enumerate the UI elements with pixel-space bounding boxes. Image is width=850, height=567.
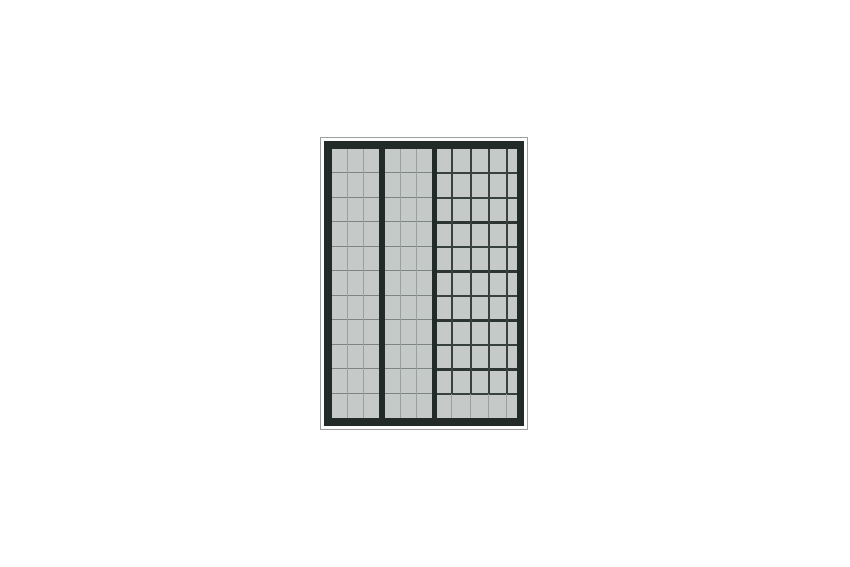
left-grid bbox=[332, 149, 379, 418]
panel-frame bbox=[324, 141, 524, 426]
grid-line bbox=[437, 393, 517, 395]
grid-line bbox=[332, 393, 379, 394]
grid-line bbox=[437, 246, 517, 248]
grid-line bbox=[437, 344, 517, 346]
grid-line bbox=[470, 149, 472, 394]
grid-line bbox=[437, 221, 517, 224]
grid-line bbox=[347, 149, 348, 418]
grid-line bbox=[332, 319, 379, 320]
right-grid bbox=[437, 149, 517, 418]
grid-line bbox=[437, 270, 517, 273]
grid-line bbox=[437, 368, 517, 371]
grid-line bbox=[332, 368, 379, 369]
grid-line bbox=[506, 149, 508, 394]
grid-line bbox=[332, 221, 379, 222]
grid-line bbox=[332, 172, 379, 173]
grid-line bbox=[385, 295, 432, 296]
grid-line bbox=[506, 394, 507, 418]
grid-line bbox=[332, 197, 379, 198]
grid-line bbox=[385, 319, 432, 320]
grid-line bbox=[385, 172, 432, 173]
grid-line bbox=[437, 172, 517, 174]
grid-line bbox=[332, 295, 379, 296]
panel-inner bbox=[332, 149, 517, 418]
grid-line bbox=[332, 246, 379, 247]
grid-line bbox=[385, 368, 432, 369]
grid-line bbox=[385, 221, 432, 222]
grid-line bbox=[363, 149, 364, 418]
grid-line bbox=[451, 149, 453, 394]
grid-line bbox=[385, 246, 432, 247]
grid-line bbox=[332, 270, 379, 271]
panel-outline bbox=[320, 137, 528, 430]
image-canvas bbox=[0, 0, 850, 567]
grid-line bbox=[416, 149, 417, 418]
grid-line bbox=[400, 149, 401, 418]
grid-line bbox=[488, 149, 490, 394]
grid-line bbox=[451, 394, 452, 418]
grid-line bbox=[385, 344, 432, 345]
grid-line bbox=[488, 394, 489, 418]
grid-line bbox=[437, 319, 517, 322]
middle-grid bbox=[385, 149, 432, 418]
grid-line bbox=[385, 270, 432, 271]
grid-line bbox=[332, 344, 379, 345]
grid-line bbox=[437, 197, 517, 199]
grid-line bbox=[437, 295, 517, 297]
grid-line bbox=[470, 394, 471, 418]
grid-line bbox=[385, 197, 432, 198]
grid-line bbox=[385, 393, 432, 394]
